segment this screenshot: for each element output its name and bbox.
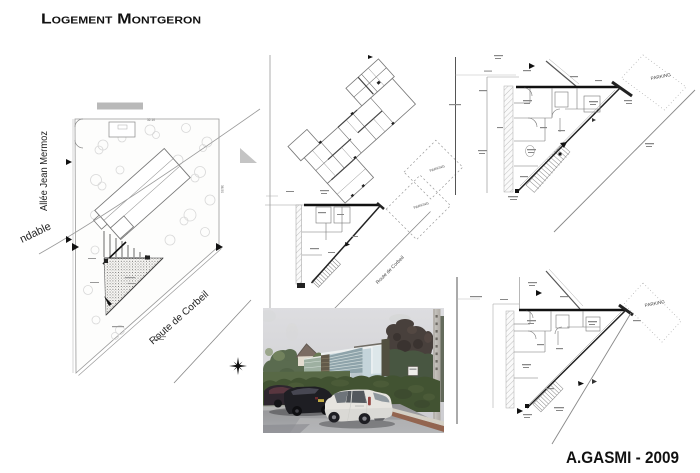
svg-text:A.GASMI - 2009: A.GASMI - 2009 bbox=[566, 449, 679, 467]
svg-text:PARKING: PARKING bbox=[644, 299, 665, 308]
svg-text:32.10: 32.10 bbox=[147, 118, 155, 122]
svg-text:Allée Jean Mermoz: Allée Jean Mermoz bbox=[39, 131, 50, 211]
svg-text:PARKING: PARKING bbox=[413, 201, 430, 210]
svg-text:PARKING: PARKING bbox=[650, 72, 671, 81]
svg-text:PARKING: PARKING bbox=[429, 164, 446, 173]
svg-text:Route de Corbeil: Route de Corbeil bbox=[375, 255, 406, 286]
svg-text:ndable: ndable bbox=[18, 220, 53, 245]
svg-text:Logement Montgeron: Logement Montgeron bbox=[41, 12, 201, 28]
svg-text:36.50: 36.50 bbox=[220, 185, 224, 193]
